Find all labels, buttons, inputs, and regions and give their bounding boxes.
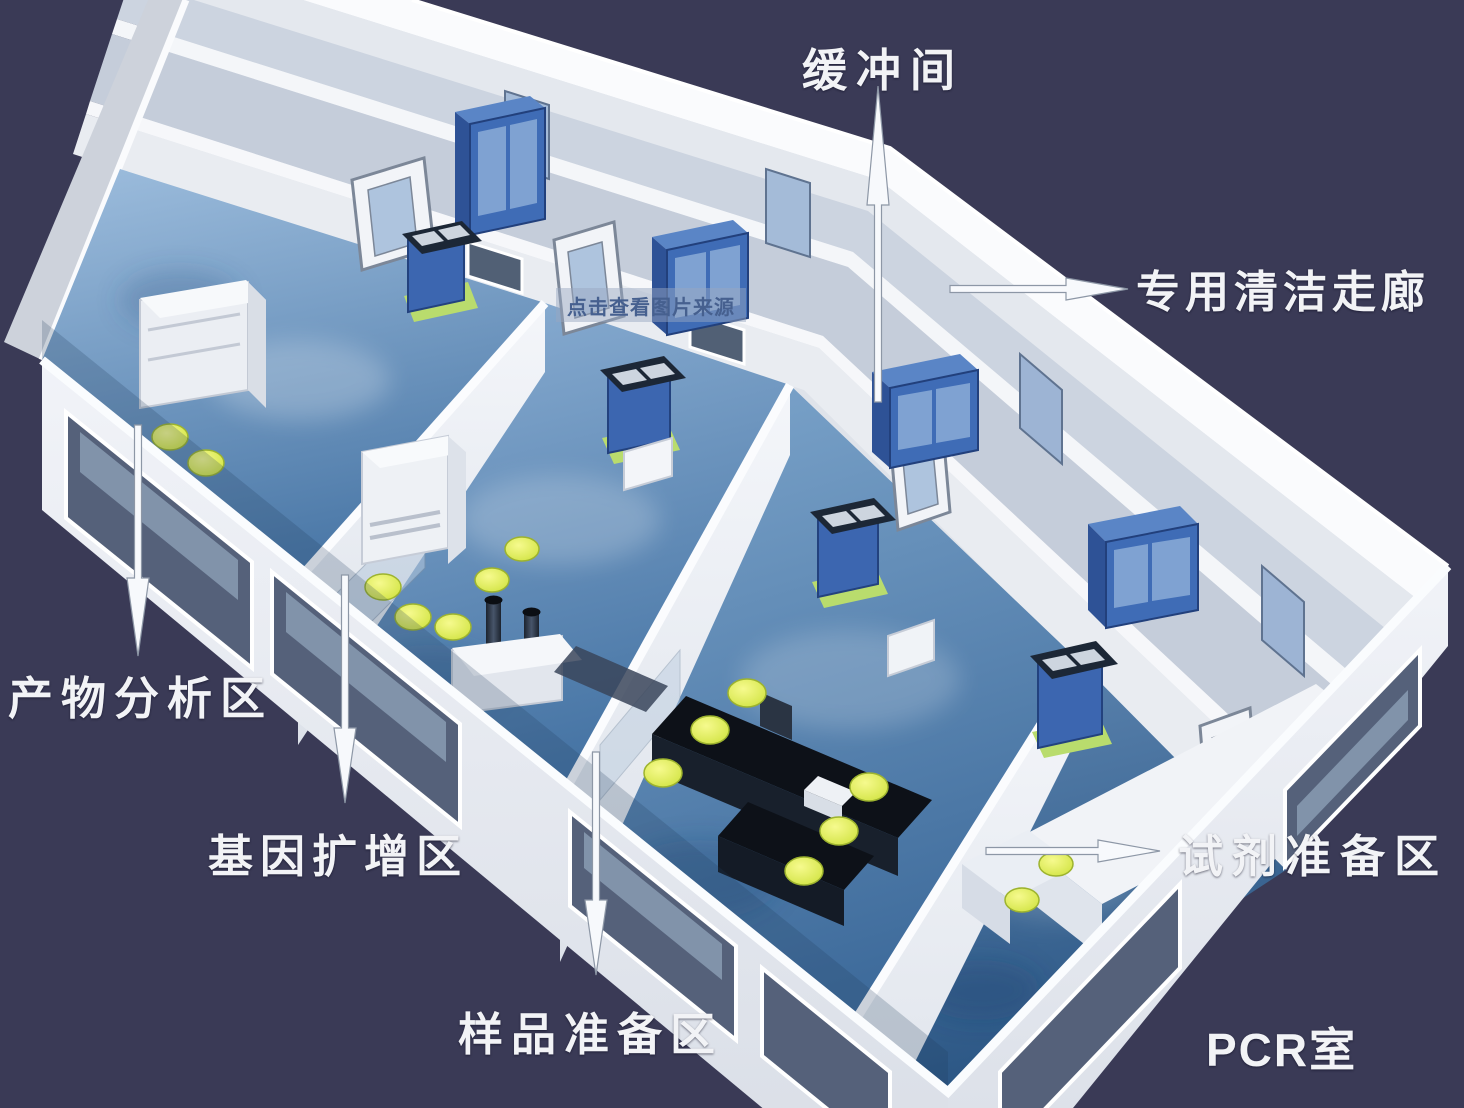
pcr-lab-diagram: 缓冲间 专用清洁走廊 产物分析区 基因扩增区 样品准备区 试剂准备区 PCR室 …: [0, 0, 1464, 1108]
sample-preparation-label: 样品准备区: [458, 998, 723, 1063]
pass-box-cabinet: [455, 96, 545, 235]
white-cabinet: [140, 280, 266, 408]
pcr-room-label: PCR室: [1206, 1014, 1357, 1080]
gene-amplification-label: 基因扩增区: [208, 820, 468, 885]
reagent-preparation-label: 试剂准备区: [1178, 820, 1448, 885]
lab-3d-render: [0, 0, 1464, 1108]
product-analysis-label: 产物分析区: [8, 662, 273, 727]
clean-corridor-label: 专用清洁走廊: [1136, 256, 1430, 320]
white-lab-machine: [362, 436, 466, 564]
pass-box-cabinet: [1088, 506, 1198, 628]
buffer-room-label: 缓冲间: [802, 34, 964, 99]
pass-box-cabinet: [872, 354, 978, 468]
image-source-watermark[interactable]: 点击查看图片来源: [556, 288, 746, 322]
